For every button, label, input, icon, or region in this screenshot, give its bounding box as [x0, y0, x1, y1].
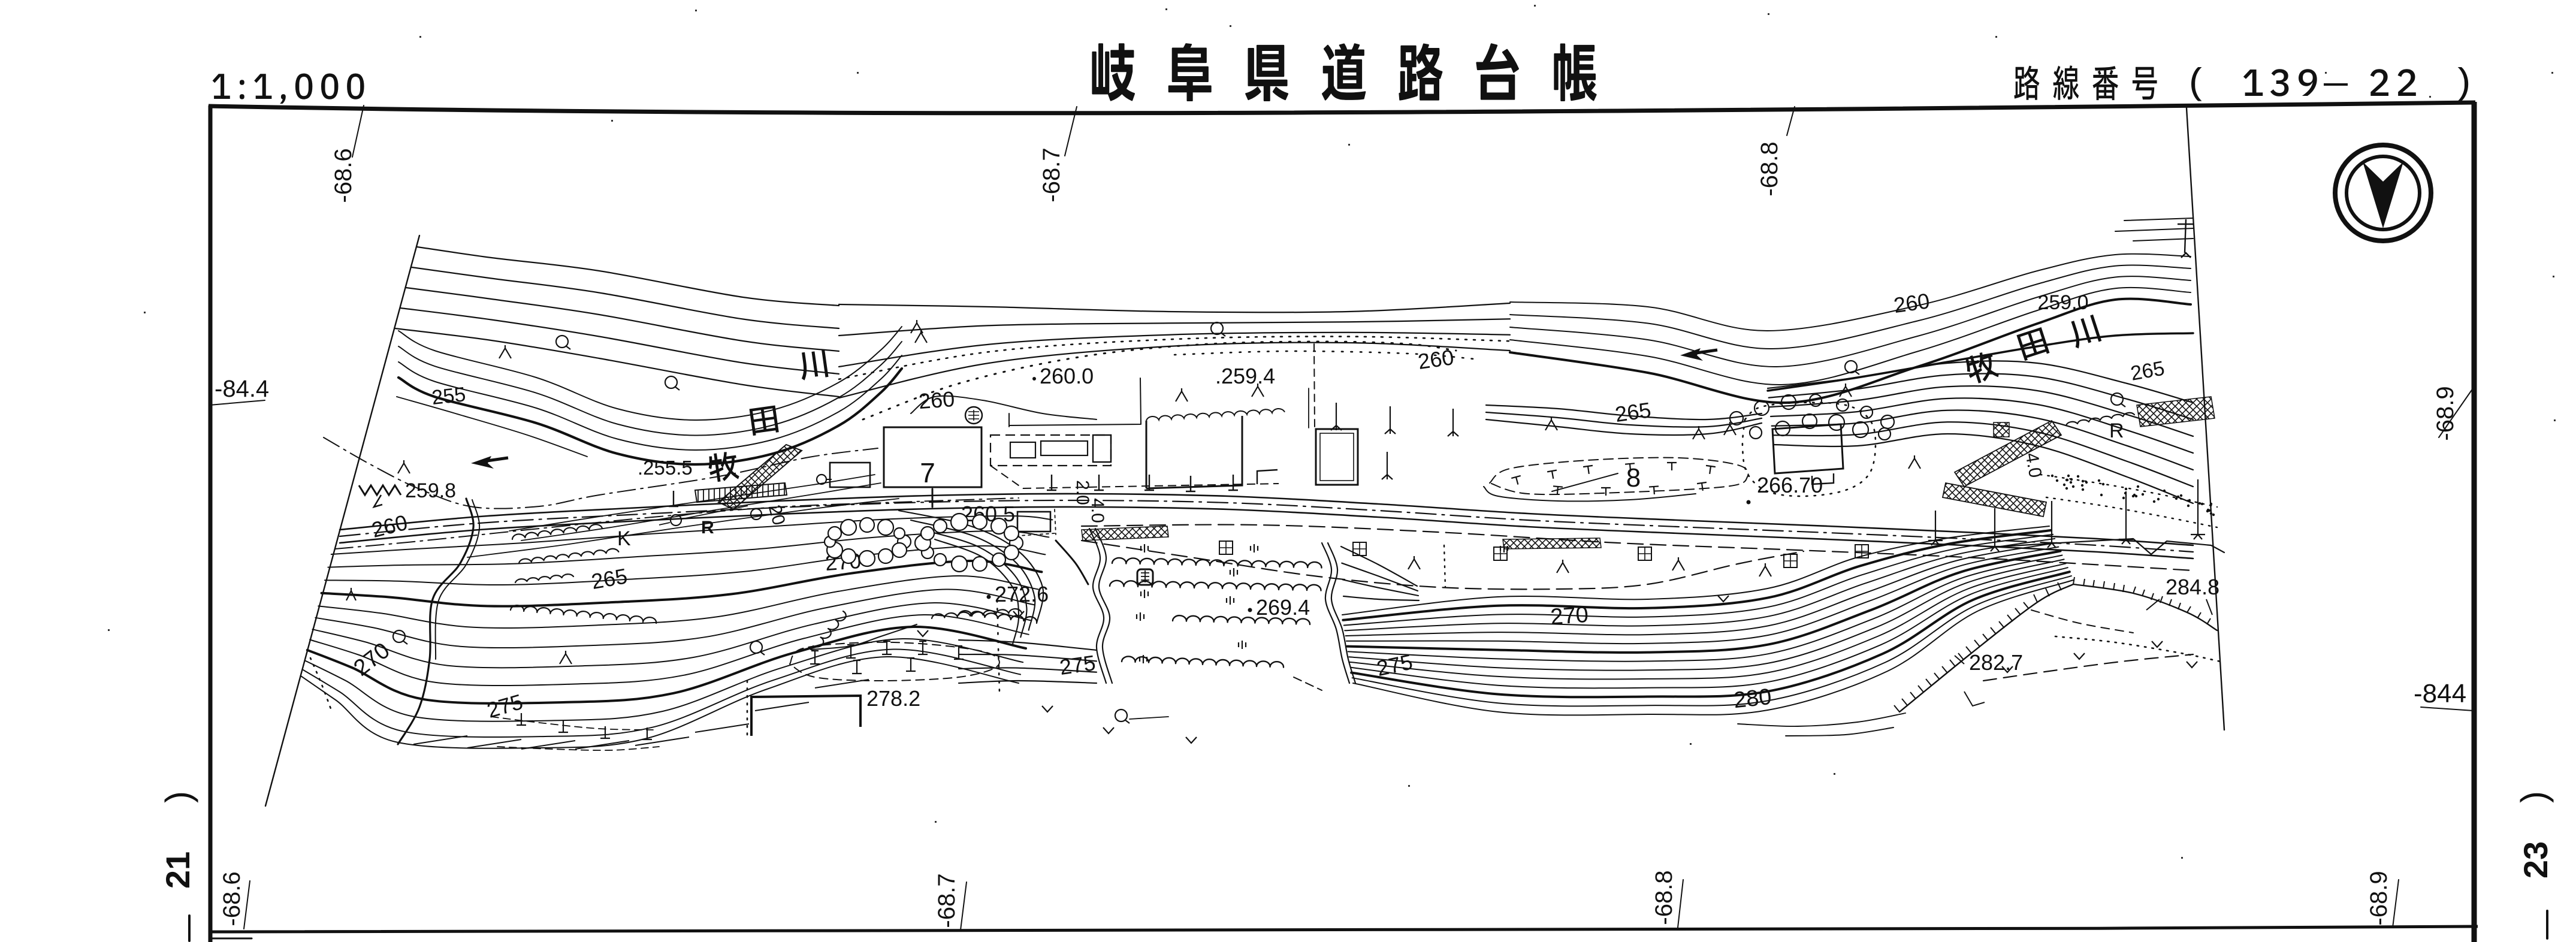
- svg-text:R: R: [701, 518, 714, 538]
- svg-text:R: R: [2109, 419, 2124, 442]
- svg-text:260: 260: [1417, 345, 1455, 374]
- svg-text:23: 23: [2517, 841, 2554, 878]
- svg-text:275: 275: [1058, 650, 1097, 680]
- svg-text:-68.9: -68.9: [2366, 871, 2392, 925]
- svg-text:): ): [158, 791, 198, 803]
- svg-text:7: 7: [920, 457, 935, 488]
- svg-text:259.0: 259.0: [2037, 291, 2088, 314]
- svg-text:K: K: [617, 527, 631, 550]
- svg-text:260.0: 260.0: [1040, 364, 1094, 388]
- svg-text:260: 260: [1892, 288, 1931, 318]
- svg-text:255: 255: [431, 383, 467, 409]
- svg-text:270: 270: [1550, 602, 1589, 630]
- svg-text:21: 21: [159, 852, 197, 889]
- svg-text:-68.7: -68.7: [934, 873, 960, 928]
- svg-text:-68.8: -68.8: [1756, 141, 1783, 196]
- svg-text:278.2: 278.2: [866, 686, 920, 711]
- svg-text:.259.4: .259.4: [1215, 364, 1275, 388]
- svg-text:272.6: 272.6: [995, 582, 1049, 606]
- svg-text:-84.4: -84.4: [215, 376, 269, 402]
- svg-text:282.7: 282.7: [1969, 650, 2023, 675]
- svg-text:-68.8: -68.8: [1651, 870, 1677, 925]
- svg-text:269.4: 269.4: [1256, 595, 1310, 620]
- svg-text:280: 280: [1732, 684, 1772, 713]
- svg-text:.255.5: .255.5: [638, 457, 693, 479]
- svg-text:8: 8: [1626, 463, 1641, 493]
- svg-text:284.8: 284.8: [2166, 575, 2219, 599]
- svg-text:-68.7: -68.7: [1038, 147, 1065, 202]
- svg-text:): ): [2514, 791, 2554, 803]
- svg-text:259.8: 259.8: [405, 479, 456, 502]
- svg-text:-844: -844: [2414, 679, 2466, 708]
- svg-text:260.5: 260.5: [961, 502, 1015, 526]
- svg-text:-68.9: -68.9: [2432, 386, 2459, 440]
- svg-text:4.0: 4.0: [1088, 498, 1107, 523]
- svg-text:266.70: 266.70: [1757, 473, 1823, 497]
- svg-text:-68.6: -68.6: [219, 871, 245, 926]
- svg-text:260: 260: [918, 387, 956, 413]
- svg-text:265: 265: [1614, 397, 1653, 427]
